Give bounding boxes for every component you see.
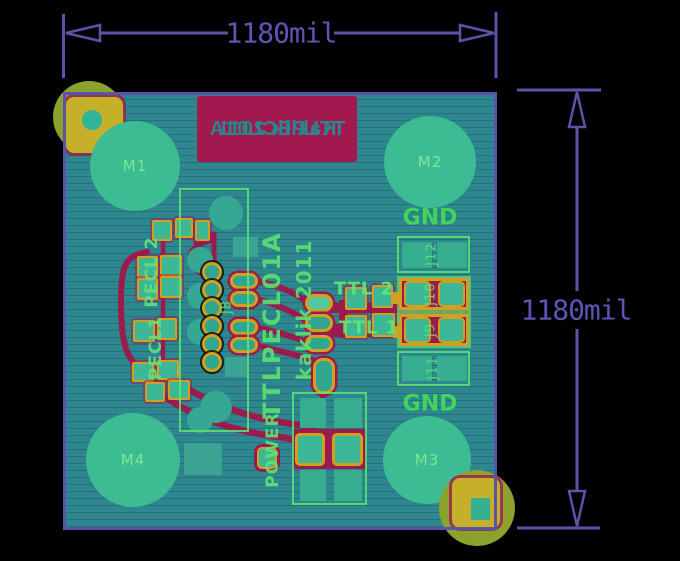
pcb-render-screen: M1 M2 M3 M4 TTLPECL01A Kaklik 2011 (0, 0, 680, 561)
dimension-label-horizontal: 1180mil (225, 17, 336, 50)
board-outline (63, 92, 497, 530)
dimension-label-vertical: 1180mil (520, 294, 631, 327)
